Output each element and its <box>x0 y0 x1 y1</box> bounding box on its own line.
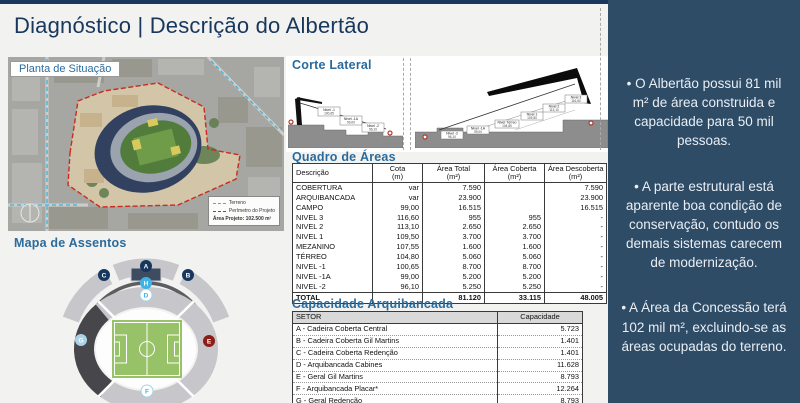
svg-text:F: F <box>145 388 149 395</box>
sector-badge-d: D <box>140 289 152 301</box>
seat-map: A B C D E F G H <box>36 250 256 403</box>
table-row: E - Geral Gil Martins8.793 <box>293 371 583 383</box>
legend-area-projeto: Área Projeto: 102.500 m² <box>213 215 275 223</box>
quadro-areas-heading: Quadro de Áreas <box>292 150 396 164</box>
col-descricao: Descrição <box>293 164 373 183</box>
slide: Diagnóstico | Descrição do Albertão <box>0 0 800 403</box>
table-row: CAMPO99,0016.51516.515 <box>293 203 607 213</box>
table-row: NIVEL 1109,503.7003.700- <box>293 233 607 243</box>
level-labels: Nivel -1 100,65 Nivel -1A 99,00 Nivel -2… <box>318 107 384 132</box>
section-centerline <box>600 8 601 150</box>
svg-text:109,50: 109,50 <box>527 116 537 120</box>
sector-badge-h: H <box>140 277 152 289</box>
corte-lateral-heading: Corte Lateral <box>292 58 372 72</box>
section-centerline <box>403 58 404 150</box>
table-row: NIVEL 2113,102.6502.650- <box>293 223 607 233</box>
table-row: NIVEL -296,105.2505.250- <box>293 282 607 292</box>
sector-badge-e: E <box>203 335 215 347</box>
svg-text:H: H <box>144 280 149 287</box>
col-area-total: Área Total(m²) <box>423 164 485 183</box>
col-capacidade: Capacidade <box>498 312 583 324</box>
page-title: Diagnóstico | Descrição do Albertão <box>14 13 369 39</box>
col-area-coberta: Área Coberta(m²) <box>485 164 545 183</box>
table-header-row: Descrição Cota(m) Área Total(m²) Área Co… <box>293 164 607 183</box>
table-row: A - Cadeira Coberta Central5.723 <box>293 324 583 336</box>
sidebar-bullet: • O Albertão possui 81 mil m² de área co… <box>621 74 787 151</box>
quadro-areas-body: COBERTURAvar7.5907.590ARQUIBANCADAvar23.… <box>293 183 607 293</box>
svg-text:A: A <box>144 263 149 270</box>
sector-badge-g: G <box>75 334 87 346</box>
ground-profile <box>288 125 403 148</box>
mapa-assentos-heading: Mapa de Assentos <box>14 236 127 250</box>
table-row: NIVEL 3116,60955955- <box>293 213 607 223</box>
svg-text:96,10: 96,10 <box>448 135 456 139</box>
table-row: MEZANINO107,551.6001.600- <box>293 242 607 252</box>
corte-section-left: Nivel -1 100,65 Nivel -1A 99,00 Nivel -2… <box>288 73 403 148</box>
sidebar-bullet: • A Área da Concessão terá 102 mil m², e… <box>621 298 787 355</box>
table-row: B - Cadeira Coberta Gil Martins1.401 <box>293 335 583 347</box>
svg-text:D: D <box>144 292 149 299</box>
table-row: COBERTURAvar7.5907.590 <box>293 183 607 193</box>
sidebar-bullet: • A parte estrutural está aparente boa c… <box>621 177 787 273</box>
quadro-areas-table: Descrição Cota(m) Área Total(m²) Área Co… <box>292 163 607 304</box>
legend-perimetro: Perímetro do Projeto <box>213 207 275 215</box>
capacidade-table: SETOR Capacidade A - Cadeira Coberta Cen… <box>292 311 583 403</box>
svg-text:G: G <box>78 337 83 344</box>
sector-badge-c: C <box>98 269 110 281</box>
svg-text:116,60: 116,60 <box>571 99 581 103</box>
section-centerline <box>410 58 411 150</box>
planta-label: Planta de Situação <box>10 61 120 77</box>
corte-section-right: Nivel -2 96,10 Nivel -1A 99,00 Nivel Tér… <box>415 68 608 148</box>
terreno-dash-icon <box>213 203 226 204</box>
map-legend: Terreno Perímetro do Projeto Área Projet… <box>208 196 280 226</box>
svg-text:C: C <box>102 272 107 279</box>
capacidade-heading: Capacidade Arquibancada <box>292 297 453 311</box>
sidebar-bullets: • O Albertão possui 81 mil m² de área co… <box>608 0 800 356</box>
perimetro-dash-icon <box>213 211 226 212</box>
col-cota: Cota(m) <box>373 164 423 183</box>
table-header-row: SETOR Capacidade <box>293 312 583 324</box>
sector-badge-a: A <box>140 260 152 272</box>
capacidade-body: A - Cadeira Coberta Central5.723B - Cade… <box>293 324 583 403</box>
table-row: F - Arquibancada Placar*12.264 <box>293 383 583 395</box>
table-row: D - Arquibancada Cabines11.628 <box>293 359 583 371</box>
sector-badge-b: B <box>182 269 194 281</box>
table-row: NIVEL -1A99,005.2005.200- <box>293 272 607 282</box>
svg-text:96,10: 96,10 <box>369 128 377 132</box>
sector-badge-f: F <box>141 385 153 397</box>
col-area-descoberta: Área Descoberta(m²) <box>545 164 607 183</box>
notes-sidebar: • O Albertão possui 81 mil m² de área co… <box>608 0 800 403</box>
svg-text:100,65: 100,65 <box>324 112 334 116</box>
svg-text:B: B <box>186 272 191 279</box>
table-row: C - Cadeira Coberta Redenção1.401 <box>293 347 583 359</box>
svg-text:99,00: 99,00 <box>474 130 482 134</box>
col-setor: SETOR <box>293 312 498 324</box>
svg-text:99,00: 99,00 <box>347 121 355 125</box>
svg-text:E: E <box>207 338 212 345</box>
legend-terreno: Terreno <box>213 199 275 207</box>
table-row: ARQUIBANCADAvar23.90023.900 <box>293 193 607 203</box>
planta-de-situacao-section: Planta de Situação Terreno Perímetro do … <box>8 57 284 231</box>
roof-post <box>295 97 302 125</box>
table-row: G - Geral Redenção8.793 <box>293 395 583 403</box>
svg-text:113,10: 113,10 <box>549 108 559 112</box>
table-row: NIVEL -1100,658.7008.700- <box>293 262 607 272</box>
svg-text:104,80: 104,80 <box>502 124 512 128</box>
table-row: TÉRREO104,805.0605.060- <box>293 252 607 262</box>
